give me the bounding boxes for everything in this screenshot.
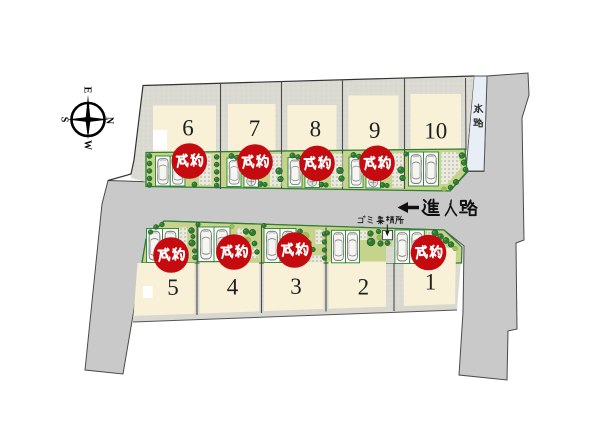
svg-text:4: 4 [227, 275, 239, 300]
svg-text:2: 2 [358, 275, 370, 300]
svg-text:6: 6 [182, 116, 194, 141]
svg-text:N: N [104, 117, 115, 125]
svg-text:E: E [82, 87, 93, 94]
svg-text:3: 3 [290, 274, 302, 299]
svg-text:7: 7 [249, 116, 261, 141]
svg-text:10: 10 [424, 119, 447, 144]
svg-text:9: 9 [369, 118, 381, 143]
svg-text:W: W [82, 140, 93, 150]
svg-text:5: 5 [167, 275, 179, 300]
svg-text:8: 8 [310, 117, 322, 142]
svg-text:1: 1 [425, 270, 437, 295]
svg-text:S: S [59, 117, 70, 123]
